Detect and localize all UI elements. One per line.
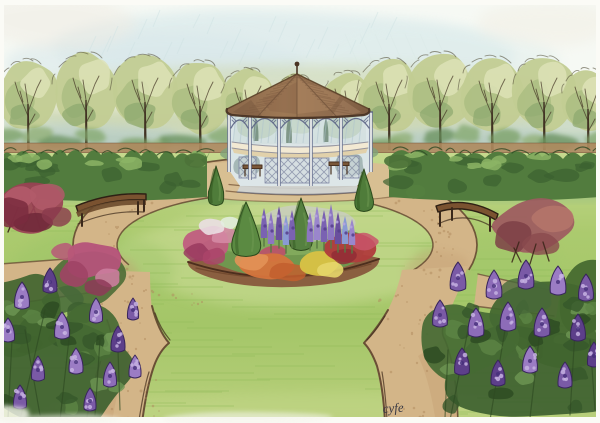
svg-text:cyfe: cyfe xyxy=(382,400,404,416)
